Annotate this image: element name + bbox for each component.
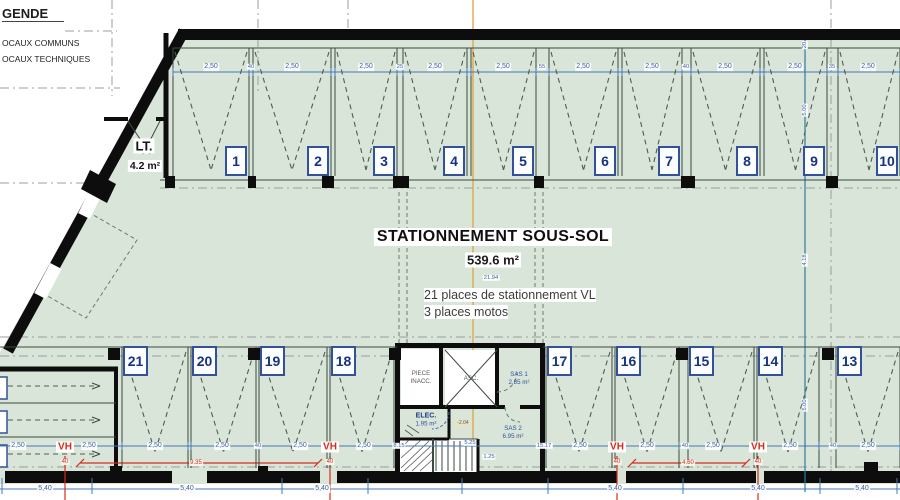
dim-label-stairs: 5.25 bbox=[463, 440, 476, 446]
centerline-dim: 21.94 bbox=[483, 275, 500, 281]
stall-number-bottom: 13 bbox=[837, 346, 862, 376]
stall-number-bottom: 21 bbox=[123, 346, 148, 376]
stall-number-top: 3 bbox=[373, 146, 395, 176]
stall-number-top: 8 bbox=[736, 146, 758, 176]
dim-label-bottom: 40 bbox=[681, 443, 689, 449]
plan-area: 539.6 m² bbox=[465, 253, 521, 268]
dim-label-outer: 5,40 bbox=[607, 485, 623, 493]
room-sas1: SAS 12.85 m² bbox=[509, 371, 530, 387]
stall-number-top: 9 bbox=[803, 146, 825, 176]
dim-label-bottom: 2,50 bbox=[639, 442, 655, 450]
dim-label-top: 2,50 bbox=[427, 63, 443, 71]
dim-label-outer: 5,40 bbox=[854, 485, 870, 493]
stall-number-bottom: 20 bbox=[192, 346, 217, 376]
vent-vh-label: VH bbox=[321, 442, 339, 453]
dim-label-bottom: 2,50 bbox=[356, 442, 372, 450]
legend-item-locaux-techniques: OCAUX TECHNIQUES bbox=[2, 54, 90, 64]
dim-label-top: 35 bbox=[828, 64, 836, 70]
dim-label-bottom: 2,50 bbox=[214, 442, 230, 450]
dim-label-top: 2,50 bbox=[644, 63, 660, 71]
dim-label-top: 2,50 bbox=[284, 63, 300, 71]
places-motos-text: 3 places motos bbox=[424, 305, 508, 319]
stall-number-top: 4 bbox=[443, 146, 465, 176]
dim-label-right: 5.00 bbox=[802, 398, 808, 411]
dim-label-outer: 5,40 bbox=[179, 485, 195, 493]
room-piece-inacc: PIECEINACC. bbox=[411, 370, 432, 386]
dim-label-top: 2,50 bbox=[358, 63, 374, 71]
dim-label-top: 55 bbox=[538, 64, 546, 70]
plan-linework bbox=[0, 0, 900, 500]
vent-span-dim: 9.35 bbox=[189, 460, 203, 466]
vent-vh-label: VH bbox=[749, 442, 767, 453]
stall-number-bottom: 14 bbox=[758, 346, 783, 376]
lt-room-name: LT. bbox=[133, 139, 154, 154]
vent-vh-label: VH bbox=[608, 442, 626, 453]
places-vl-text: 21 places de stationnement VL bbox=[424, 288, 596, 302]
dim-label-top: 25 bbox=[396, 64, 404, 70]
dim-label-right: 20 bbox=[802, 41, 808, 49]
dim-label-bottom: 2,50 bbox=[572, 442, 588, 450]
dim-label-stairs: 1.25 bbox=[482, 454, 495, 460]
dim-label-bottom: 2,50 bbox=[10, 442, 26, 450]
dim-label-outer: 5,40 bbox=[750, 485, 766, 493]
stall-number-bottom: 18 bbox=[331, 346, 356, 376]
dim-label-top: 2,50 bbox=[495, 63, 511, 71]
dim-label-bottom: 40 bbox=[829, 443, 837, 449]
vent-tick-dim: 40 bbox=[754, 459, 763, 465]
stall-number-top: 7 bbox=[658, 146, 680, 176]
stall-number-top: 1 bbox=[225, 146, 247, 176]
dim-label-bottom: 2,50 bbox=[860, 442, 876, 450]
stall-number-top: 10 bbox=[876, 146, 898, 176]
stall-number-bottom: 19 bbox=[260, 346, 285, 376]
stall-number-bottom: 15 bbox=[689, 346, 714, 376]
vent-vh-label: VH bbox=[56, 442, 74, 453]
plan-title: STATIONNEMENT SOUS-SOL bbox=[374, 228, 612, 246]
dim-label-right: 5.00 bbox=[802, 103, 808, 116]
legend-item-locaux-communs: OCAUX COMMUNS bbox=[2, 38, 79, 48]
dim-label-bottom: 2,50 bbox=[147, 442, 163, 450]
dim-label-bottom: 2,50 bbox=[782, 442, 798, 450]
dim-label-bottom: 2,50 bbox=[81, 442, 97, 450]
vent-tick-dim: 40 bbox=[613, 459, 622, 465]
dim-label-right: 4.18 bbox=[802, 253, 808, 266]
lt-room-area: 4.2 m² bbox=[128, 160, 162, 172]
dim-label-bottom: 15.17 bbox=[536, 443, 553, 449]
room-sas2: SAS 26.95 m² bbox=[503, 425, 524, 441]
vent-tick-dim: 40 bbox=[61, 459, 70, 465]
stall-number-top: 6 bbox=[594, 146, 616, 176]
vent-span-dim: 4.60 bbox=[681, 460, 695, 466]
stall-number-top: 5 bbox=[512, 146, 534, 176]
dim-label-top: 40 bbox=[682, 64, 690, 70]
dim-label-outer: 5,40 bbox=[37, 485, 53, 493]
dim-label-top: 40 bbox=[247, 64, 255, 70]
room-asc: ASC. bbox=[464, 375, 478, 383]
dim-label-bottom: 2,50 bbox=[705, 442, 721, 450]
dim-label-outer: 5,40 bbox=[314, 485, 330, 493]
room-elec: ELEC.1.95 m² bbox=[416, 411, 437, 428]
dim-label-bottom: 40 bbox=[254, 443, 262, 449]
floorplan-canvas: GENDE OCAUX COMMUNS OCAUX TECHNIQUES LT.… bbox=[0, 0, 900, 500]
dim-label-top: 2,50 bbox=[717, 63, 733, 71]
dim-label-bottom: 2,50 bbox=[292, 442, 308, 450]
stall-number-bottom: 16 bbox=[616, 346, 641, 376]
dim-label-top: 2,50 bbox=[575, 63, 591, 71]
dim-label-top: 2,50 bbox=[860, 63, 876, 71]
dim-label-bottom: 8.15 bbox=[392, 443, 405, 449]
legend-title: GENDE bbox=[2, 6, 64, 22]
level-marker: -2.04 bbox=[455, 419, 470, 427]
stall-number-bottom: 17 bbox=[547, 346, 572, 376]
dim-label-top: 2,50 bbox=[203, 63, 219, 71]
dim-label-top: 2,50 bbox=[787, 63, 803, 71]
stall-number-top: 2 bbox=[307, 146, 329, 176]
vent-tick-dim: 40 bbox=[326, 459, 335, 465]
